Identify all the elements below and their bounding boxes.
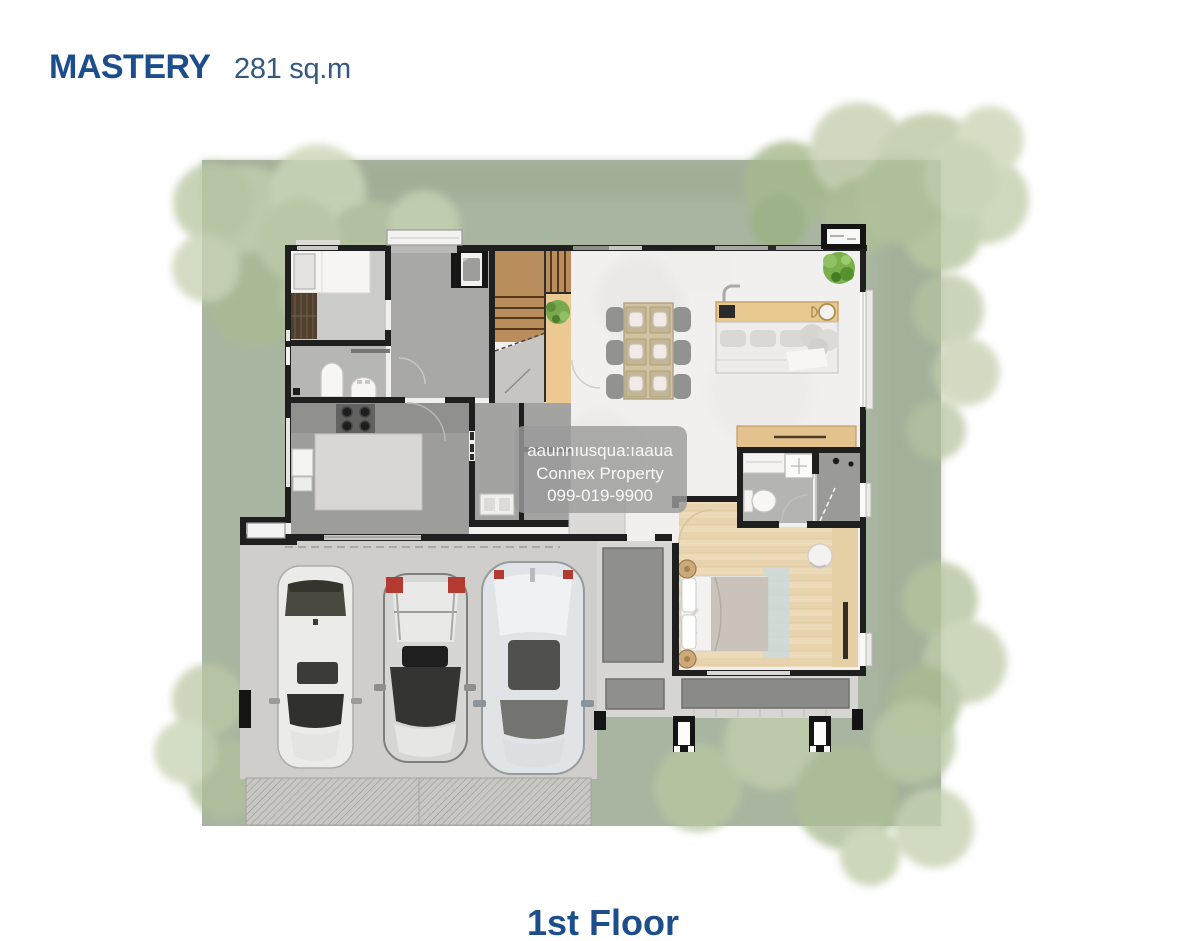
svg-text:Connex Property: Connex Property	[536, 464, 664, 483]
svg-text:281 sq.m: 281 sq.m	[234, 53, 351, 85]
svg-text:aaunnıusqua:ıaaua: aaunnıusqua:ıaaua	[527, 441, 673, 460]
svg-text:099-019-9900: 099-019-9900	[547, 486, 653, 505]
svg-text:MASTERY: MASTERY	[49, 48, 211, 86]
svg-text:1st Floor: 1st Floor	[527, 902, 679, 941]
